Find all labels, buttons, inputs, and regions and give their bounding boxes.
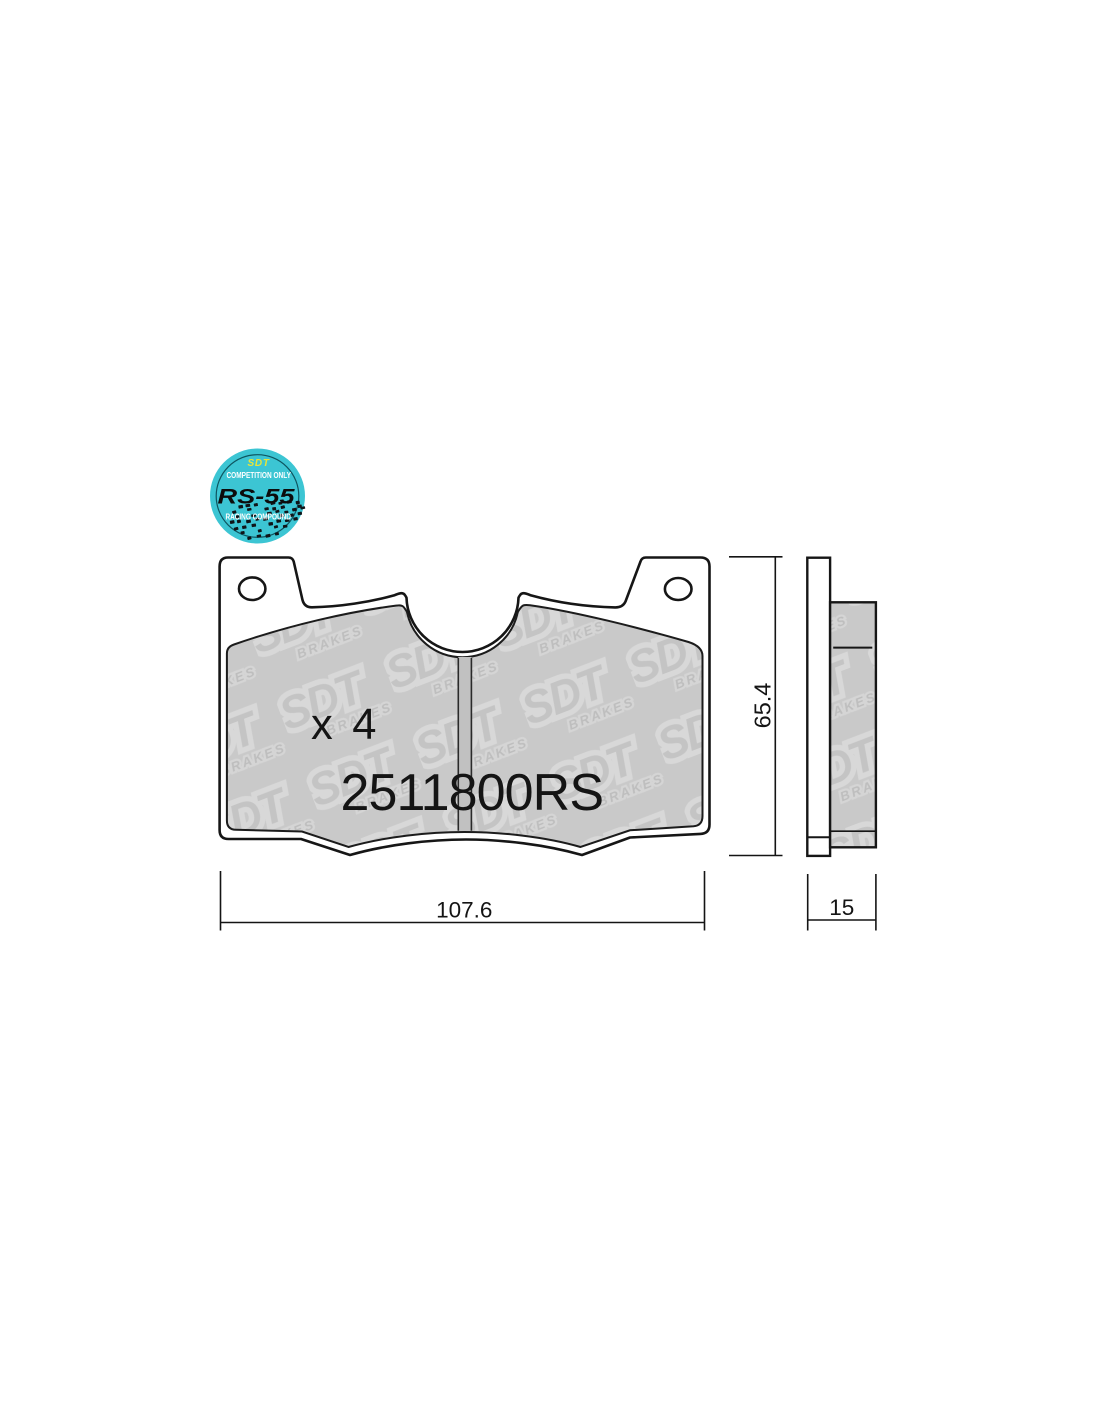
svg-text:RACING COMPOUND: RACING COMPOUND (225, 512, 291, 521)
svg-text:COMPETITION ONLY: COMPETITION ONLY (226, 470, 291, 480)
svg-text:65.4: 65.4 (750, 683, 776, 729)
svg-text:SDT: SDT (248, 458, 271, 469)
svg-text:15: 15 (829, 895, 854, 920)
svg-text:2511800RS: 2511800RS (341, 764, 605, 822)
svg-text:RS-55: RS-55 (218, 485, 296, 509)
svg-text:x 4: x 4 (311, 701, 377, 749)
svg-text:107.6: 107.6 (436, 898, 492, 923)
